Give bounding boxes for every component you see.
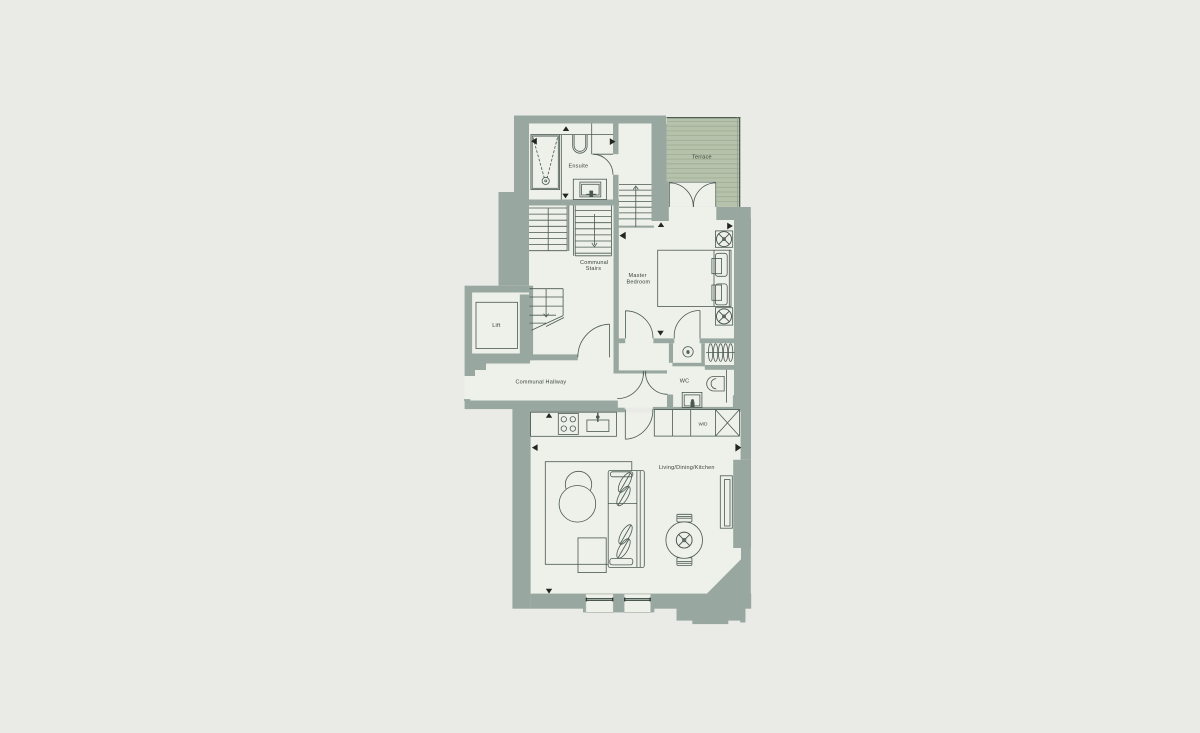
svg-text:Stairs: Stairs [586,266,601,272]
svg-text:Bedroom: Bedroom [626,280,650,286]
svg-text:Lift: Lift [492,323,500,329]
svg-text:Living/Dining/Kitchen: Living/Dining/Kitchen [659,465,715,471]
svg-text:Ensuite: Ensuite [568,163,588,169]
svg-text:Terrace: Terrace [692,154,712,160]
svg-text:Communal Hallway: Communal Hallway [515,379,566,385]
svg-text:W/D: W/D [699,422,709,427]
svg-text:S: S [687,350,690,355]
svg-text:WC: WC [680,379,690,385]
svg-text:Master: Master [629,273,647,279]
